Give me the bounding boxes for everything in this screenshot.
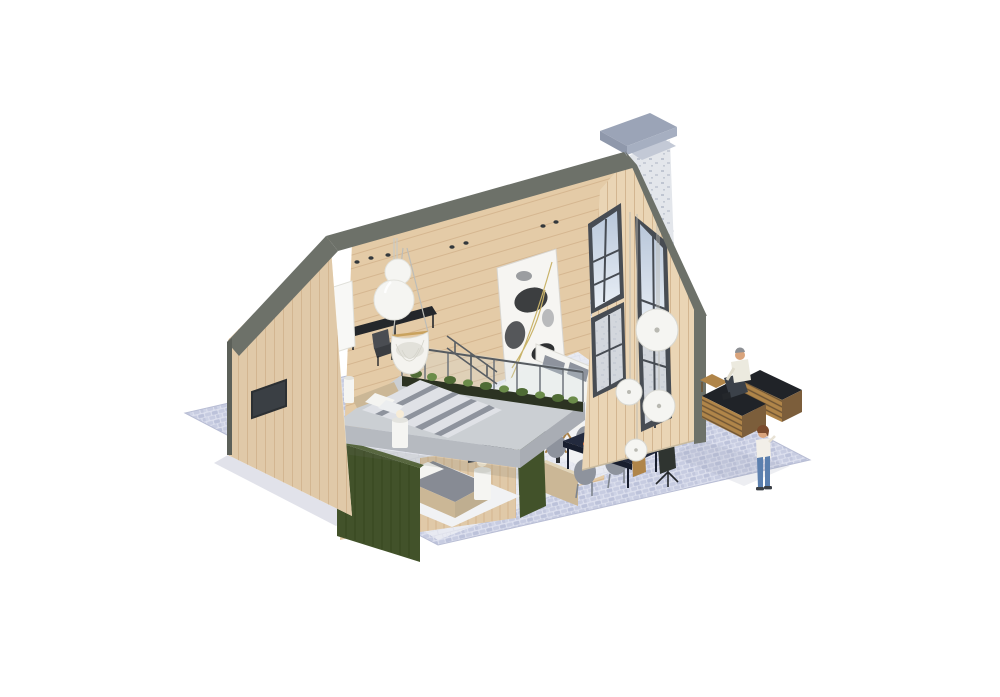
isometric-house-illustration: [0, 0, 1000, 697]
child-leg: [765, 456, 770, 487]
child-leg: [757, 457, 763, 488]
architectural-render: [0, 0, 1000, 697]
loft-lamp: [344, 376, 354, 403]
corner-trim: [694, 310, 706, 444]
child-shoe: [764, 486, 772, 489]
man-torso: [731, 359, 751, 383]
child-shoe: [756, 487, 764, 490]
